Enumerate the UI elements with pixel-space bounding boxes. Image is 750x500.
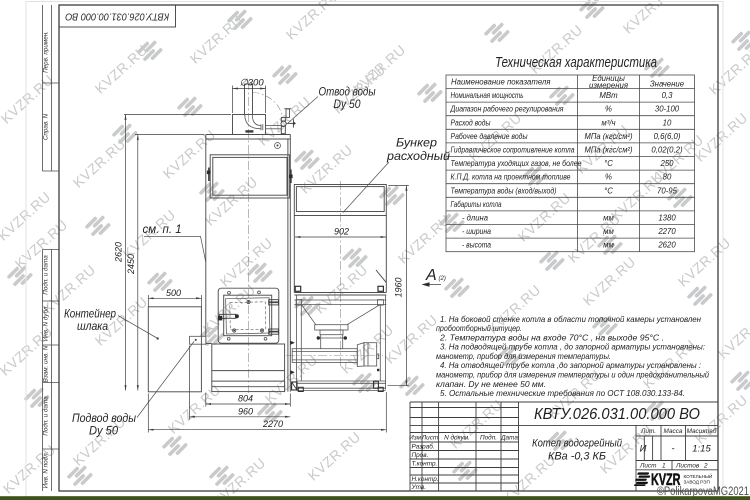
svg-text:KVZR.RU: KVZR.RU <box>580 253 639 308</box>
svg-text:-: - <box>671 444 674 455</box>
svg-text:мм: мм <box>603 214 614 223</box>
svg-text:А: А <box>425 267 437 284</box>
svg-text:Рабочее давление воды: Рабочее давление воды <box>451 132 528 141</box>
svg-text:250: 250 <box>659 159 674 168</box>
svg-text:960: 960 <box>238 406 253 416</box>
svg-text:Dy 50: Dy 50 <box>89 426 119 438</box>
svg-text:(2): (2) <box>439 276 446 282</box>
svg-text:расходный: расходный <box>386 151 451 163</box>
svg-text:Справ. N: Справ. N <box>43 113 50 140</box>
svg-text:1: 1 <box>662 463 666 470</box>
svg-text:Изм.: Изм. <box>409 435 423 442</box>
svg-text:5. Остальные технические треб: 5. Остальные технические требования по О… <box>440 389 685 398</box>
svg-text:Листов: Листов <box>675 463 700 470</box>
svg-text:Разраб.: Разраб. <box>412 443 435 451</box>
svg-text:Подп.: Подп. <box>480 434 497 442</box>
svg-text:клапан. Dу не менее 50 мм.: клапан. Dу не менее 50 мм. <box>436 380 546 389</box>
svg-text:Масштаб: Масштаб <box>687 427 717 435</box>
svg-text:манометр, прибор для измерения: манометр, прибор для измерения температу… <box>436 352 611 361</box>
svg-text:Значение: Значение <box>650 80 685 89</box>
svg-text:1. На боковой стенке котла в: 1. На боковой стенке котла в области топ… <box>440 315 701 324</box>
svg-text:МПа (кгс/см²): МПа (кгс/см²) <box>585 132 633 141</box>
svg-text:Н.контр.: Н.контр. <box>412 476 439 483</box>
svg-text:KVZR.RU: KVZR.RU <box>706 42 750 97</box>
svg-text:KVZR.RU: KVZR.RU <box>312 261 371 316</box>
svg-text:МВт: МВт <box>599 91 618 100</box>
svg-text:1380: 1380 <box>658 214 676 223</box>
svg-text:°С: °С <box>604 186 613 195</box>
svg-text:KVZR.RU: KVZR.RU <box>382 311 441 366</box>
svg-text:804: 804 <box>238 394 253 404</box>
svg-text:Температура уходящих газов, не: Температура уходящих газов, не более <box>451 159 583 168</box>
svg-text:КОТЕЛЬНЫЙ: КОТЕЛЬНЫЙ <box>684 472 713 479</box>
svg-text:Т.контр.: Т.контр. <box>412 461 438 468</box>
svg-text:KVZR.RU: KVZR.RU <box>692 391 750 446</box>
svg-text:2270: 2270 <box>262 419 283 429</box>
svg-text:- высота: - высота <box>462 241 492 250</box>
svg-text:Лист: Лист <box>421 435 439 442</box>
svg-text:1:15: 1:15 <box>692 444 711 455</box>
svg-text:70-95: 70-95 <box>657 186 678 195</box>
svg-text:Лит.: Лит. <box>640 428 656 435</box>
svg-text:KVZR.RU: KVZR.RU <box>297 141 356 196</box>
svg-text:80: 80 <box>663 173 672 182</box>
svg-text:3. На подводящей трубе котла: 3. На подводящей трубе котла , до запорн… <box>440 343 705 352</box>
svg-text:КВТУ.026.031.00.000 ВО: КВТУ.026.031.00.000 ВО <box>534 406 700 423</box>
svg-text:Взам. инв. N: Взам. инв. N <box>43 345 50 382</box>
svg-text:%: % <box>605 173 612 182</box>
svg-text:0,3: 0,3 <box>662 91 674 100</box>
svg-text:Температура воды (вход/выход): Температура воды (вход/выход) <box>451 186 557 195</box>
svg-text:МПа (кгс/см²): МПа (кгс/см²) <box>585 146 633 155</box>
svg-text:°С: °С <box>604 159 613 168</box>
svg-text:KVZR.RU: KVZR.RU <box>0 441 59 496</box>
svg-text:Дата: Дата <box>500 435 518 442</box>
svg-text:измерения: измерения <box>589 81 629 90</box>
svg-text:Котел водогрейный: Котел водогрейный <box>532 438 622 450</box>
svg-text:- длина: - длина <box>462 214 489 223</box>
svg-text:- ширина: - ширина <box>462 227 492 236</box>
svg-text:0,02(0,2): 0,02(0,2) <box>651 146 683 155</box>
svg-text:902: 902 <box>334 226 349 236</box>
svg-text:Контейнер: Контейнер <box>64 309 117 321</box>
svg-text:мм: мм <box>603 241 614 250</box>
svg-text:см. п. 1: см. п. 1 <box>143 224 182 236</box>
svg-text:Подвод воды: Подвод воды <box>72 413 136 425</box>
svg-text:Пров.: Пров. <box>412 452 429 459</box>
svg-text:KVZR.RU: KVZR.RU <box>217 234 276 289</box>
svg-text:0,6(6,0): 0,6(6,0) <box>654 132 681 141</box>
svg-text:KVZR.RU: KVZR.RU <box>165 381 224 436</box>
svg-text:Бункер: Бункер <box>396 138 438 150</box>
svg-text:КВа -0,3 КБ: КВа -0,3 КБ <box>548 451 606 463</box>
svg-text:KVZR.RU: KVZR.RU <box>283 0 342 43</box>
svg-text:Подп. и дата: Подп. и дата <box>42 396 50 436</box>
svg-text:N докум.: N докум. <box>444 434 470 442</box>
svg-text:И: И <box>640 444 647 455</box>
svg-text:Отвод воды: Отвод воды <box>319 87 376 99</box>
svg-text:2. Температура воды на входе: 2. Температура воды на входе 70°С , на в… <box>439 333 664 342</box>
svg-text:Dy 50: Dy 50 <box>334 99 362 111</box>
svg-text:КВТУ.026.031.00.000 ВО: КВТУ.026.031.00.000 ВО <box>65 11 169 23</box>
svg-text:2: 2 <box>703 463 708 470</box>
svg-text:Наименование показателя: Наименование показателя <box>451 78 551 87</box>
svg-text:Лист: Лист <box>639 463 657 470</box>
svg-text:10: 10 <box>663 118 672 127</box>
svg-text:Перв. примен.: Перв. примен. <box>43 31 50 73</box>
svg-text:KVZR.RU: KVZR.RU <box>715 306 750 361</box>
svg-text:Подп. и дата: Подп. и дата <box>42 255 50 295</box>
svg-text:∅300: ∅300 <box>240 78 265 89</box>
svg-text:1960: 1960 <box>394 277 404 297</box>
svg-text:2620: 2620 <box>114 242 124 263</box>
svg-text:пробоотборный штуцер.: пробоотборный штуцер. <box>436 324 522 333</box>
svg-text:Диапазон рабочего регулировани: Диапазон рабочего регулирования <box>450 105 565 114</box>
svg-text:2270: 2270 <box>657 227 676 236</box>
svg-text:Номинальная мощность: Номинальная мощность <box>451 91 524 100</box>
svg-text:30-100: 30-100 <box>655 105 680 114</box>
svg-text:4. На отводящей трубе котла ,: 4. На отводящей трубе котла ,до запорной… <box>440 361 701 370</box>
svg-text:Масса: Масса <box>664 428 683 435</box>
svg-text:KVZR.RU: KVZR.RU <box>675 234 734 289</box>
svg-text:500: 500 <box>166 288 181 298</box>
svg-text:м³/ч: м³/ч <box>601 118 615 127</box>
svg-text:К.П.Д. котла на проектном топл: К.П.Д. котла на проектном топливе <box>451 173 572 182</box>
svg-text:манометр, прибор для измерения: манометр, прибор для измерения температу… <box>436 371 709 380</box>
svg-text:Техническая характеристика: Техническая характеристика <box>495 55 657 71</box>
svg-text:2620: 2620 <box>657 241 676 250</box>
svg-text:Инв. N подл.: Инв. N подл. <box>42 452 50 489</box>
svg-text:2450: 2450 <box>126 254 136 275</box>
svg-text:Гидравлическое сопротивление к: Гидравлическое сопротивление котла <box>451 146 576 155</box>
svg-text:ЗАВОД РЭП: ЗАВОД РЭП <box>684 480 710 485</box>
svg-text:KVZR.RU: KVZR.RU <box>305 428 364 483</box>
svg-text:Габариты котла: Габариты котла <box>451 200 503 209</box>
svg-text:шлака: шлака <box>77 321 108 333</box>
svg-text:мм: мм <box>603 227 614 236</box>
svg-text:Расход воды: Расход воды <box>451 118 491 127</box>
svg-text:Инв. N дубл.: Инв. N дубл. <box>42 305 50 341</box>
svg-text:Утв.: Утв. <box>411 484 427 491</box>
svg-text:%: % <box>605 105 612 114</box>
